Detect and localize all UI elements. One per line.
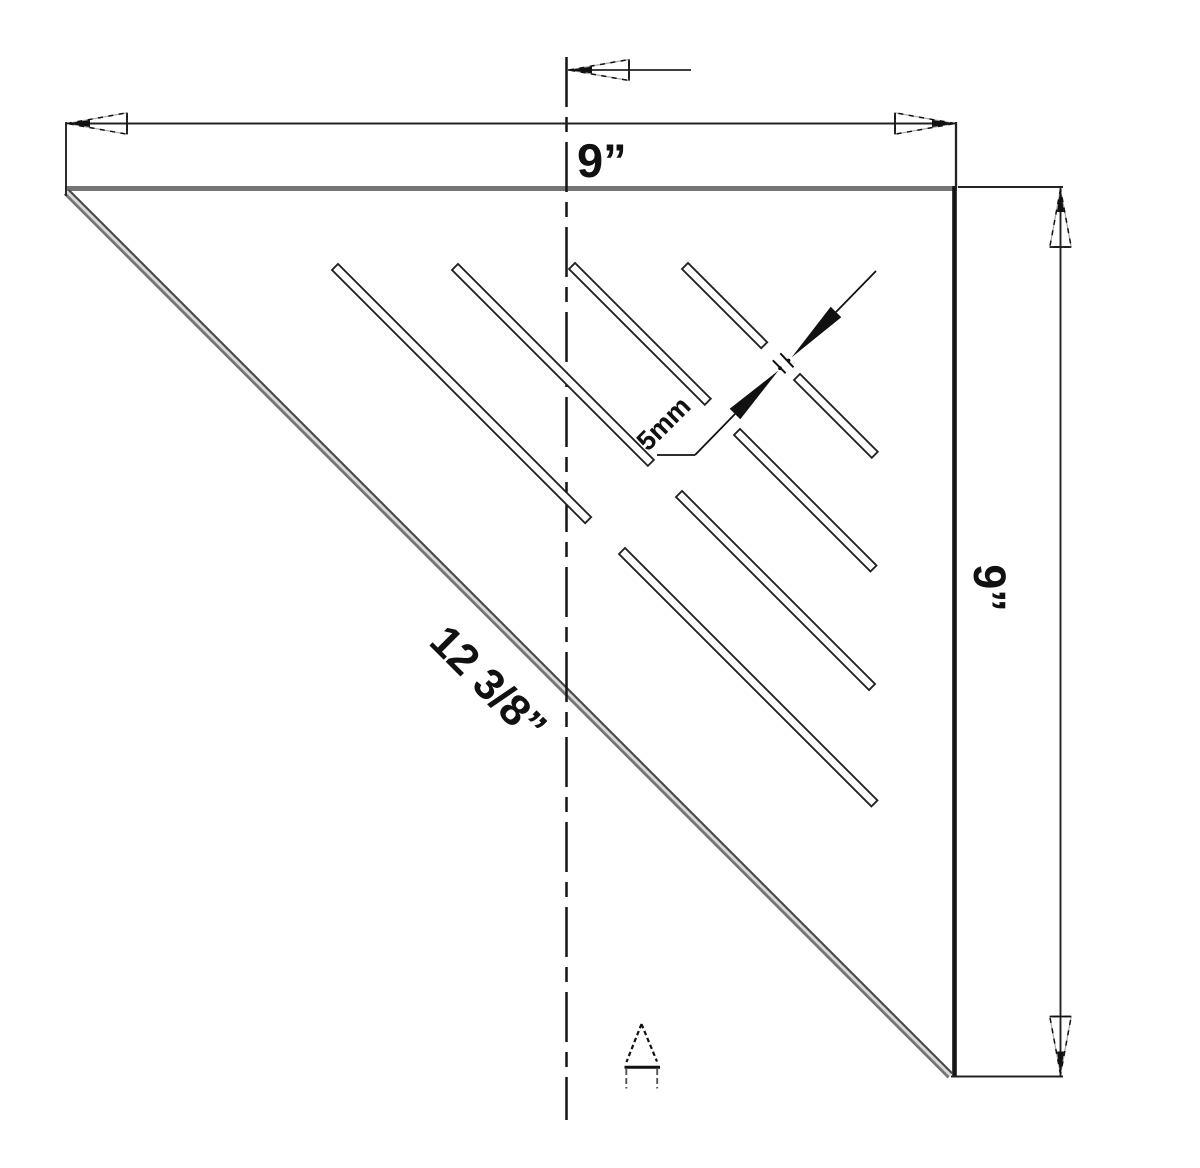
svg-text:9”: 9” [964,564,1015,612]
svg-text:9”: 9” [577,134,627,187]
svg-text:12 3/8”: 12 3/8” [420,617,555,752]
